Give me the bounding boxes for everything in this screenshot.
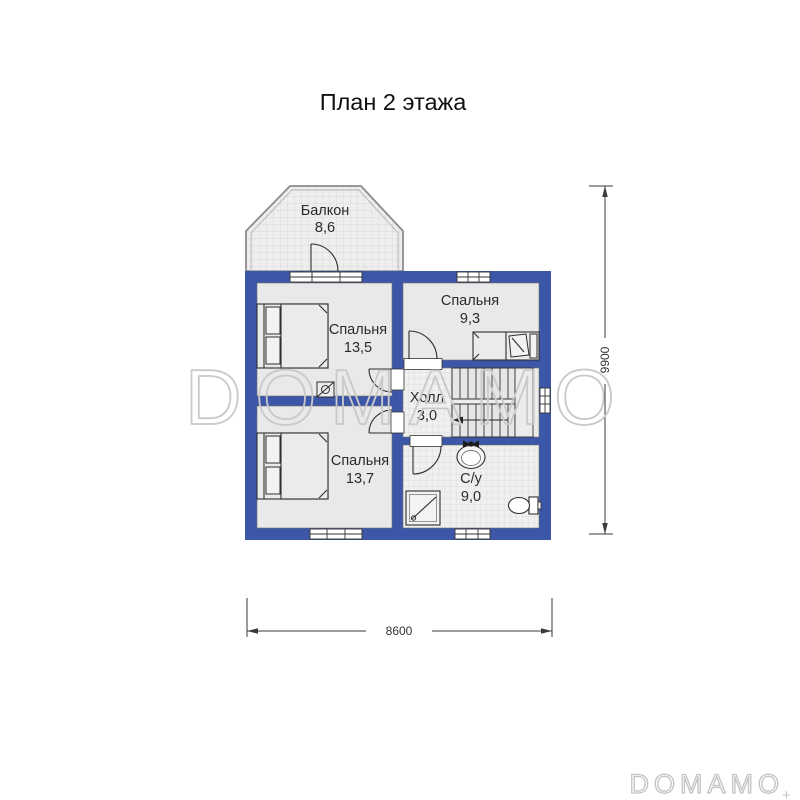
- window-bedroom-3: [310, 529, 362, 539]
- dimension-width: 8600: [247, 598, 552, 638]
- window-bathroom: [455, 529, 490, 539]
- floor-plan-page: План 2 этажа: [0, 0, 800, 800]
- room-label-balcony: Балкон: [301, 203, 350, 219]
- room-label-bedroom-1: Спальня: [329, 322, 387, 338]
- window-bedroom-2: [457, 272, 490, 282]
- room-area-bathroom: 9,0: [461, 489, 481, 505]
- watermark-corner-mark: +: [782, 787, 791, 800]
- room-area-bedroom-2: 9,3: [460, 311, 480, 327]
- room-label-bedroom-2: Спальня: [441, 293, 499, 309]
- room-label-bedroom-3: Спальня: [331, 453, 389, 469]
- watermark-corner: DOMAMO: [630, 769, 785, 799]
- double-bed-bedroom-3: [257, 433, 328, 499]
- floor-plan-drawing: План 2 этажа: [0, 0, 800, 800]
- watermark-center: DOMAMO: [185, 353, 629, 441]
- room-area-balcony: 8,6: [315, 220, 335, 236]
- room-area-bedroom-3: 13,7: [346, 471, 374, 487]
- wall-bottom: [245, 528, 551, 540]
- watermarks: DOMAMO DOMAMO +: [185, 353, 791, 800]
- dimension-width-label: 8600: [386, 624, 413, 638]
- shower: [406, 491, 440, 525]
- room-label-bathroom: С/у: [460, 471, 483, 487]
- page-title: План 2 этажа: [320, 89, 468, 115]
- window-balcony-block: [290, 272, 362, 282]
- toilet: [509, 497, 542, 514]
